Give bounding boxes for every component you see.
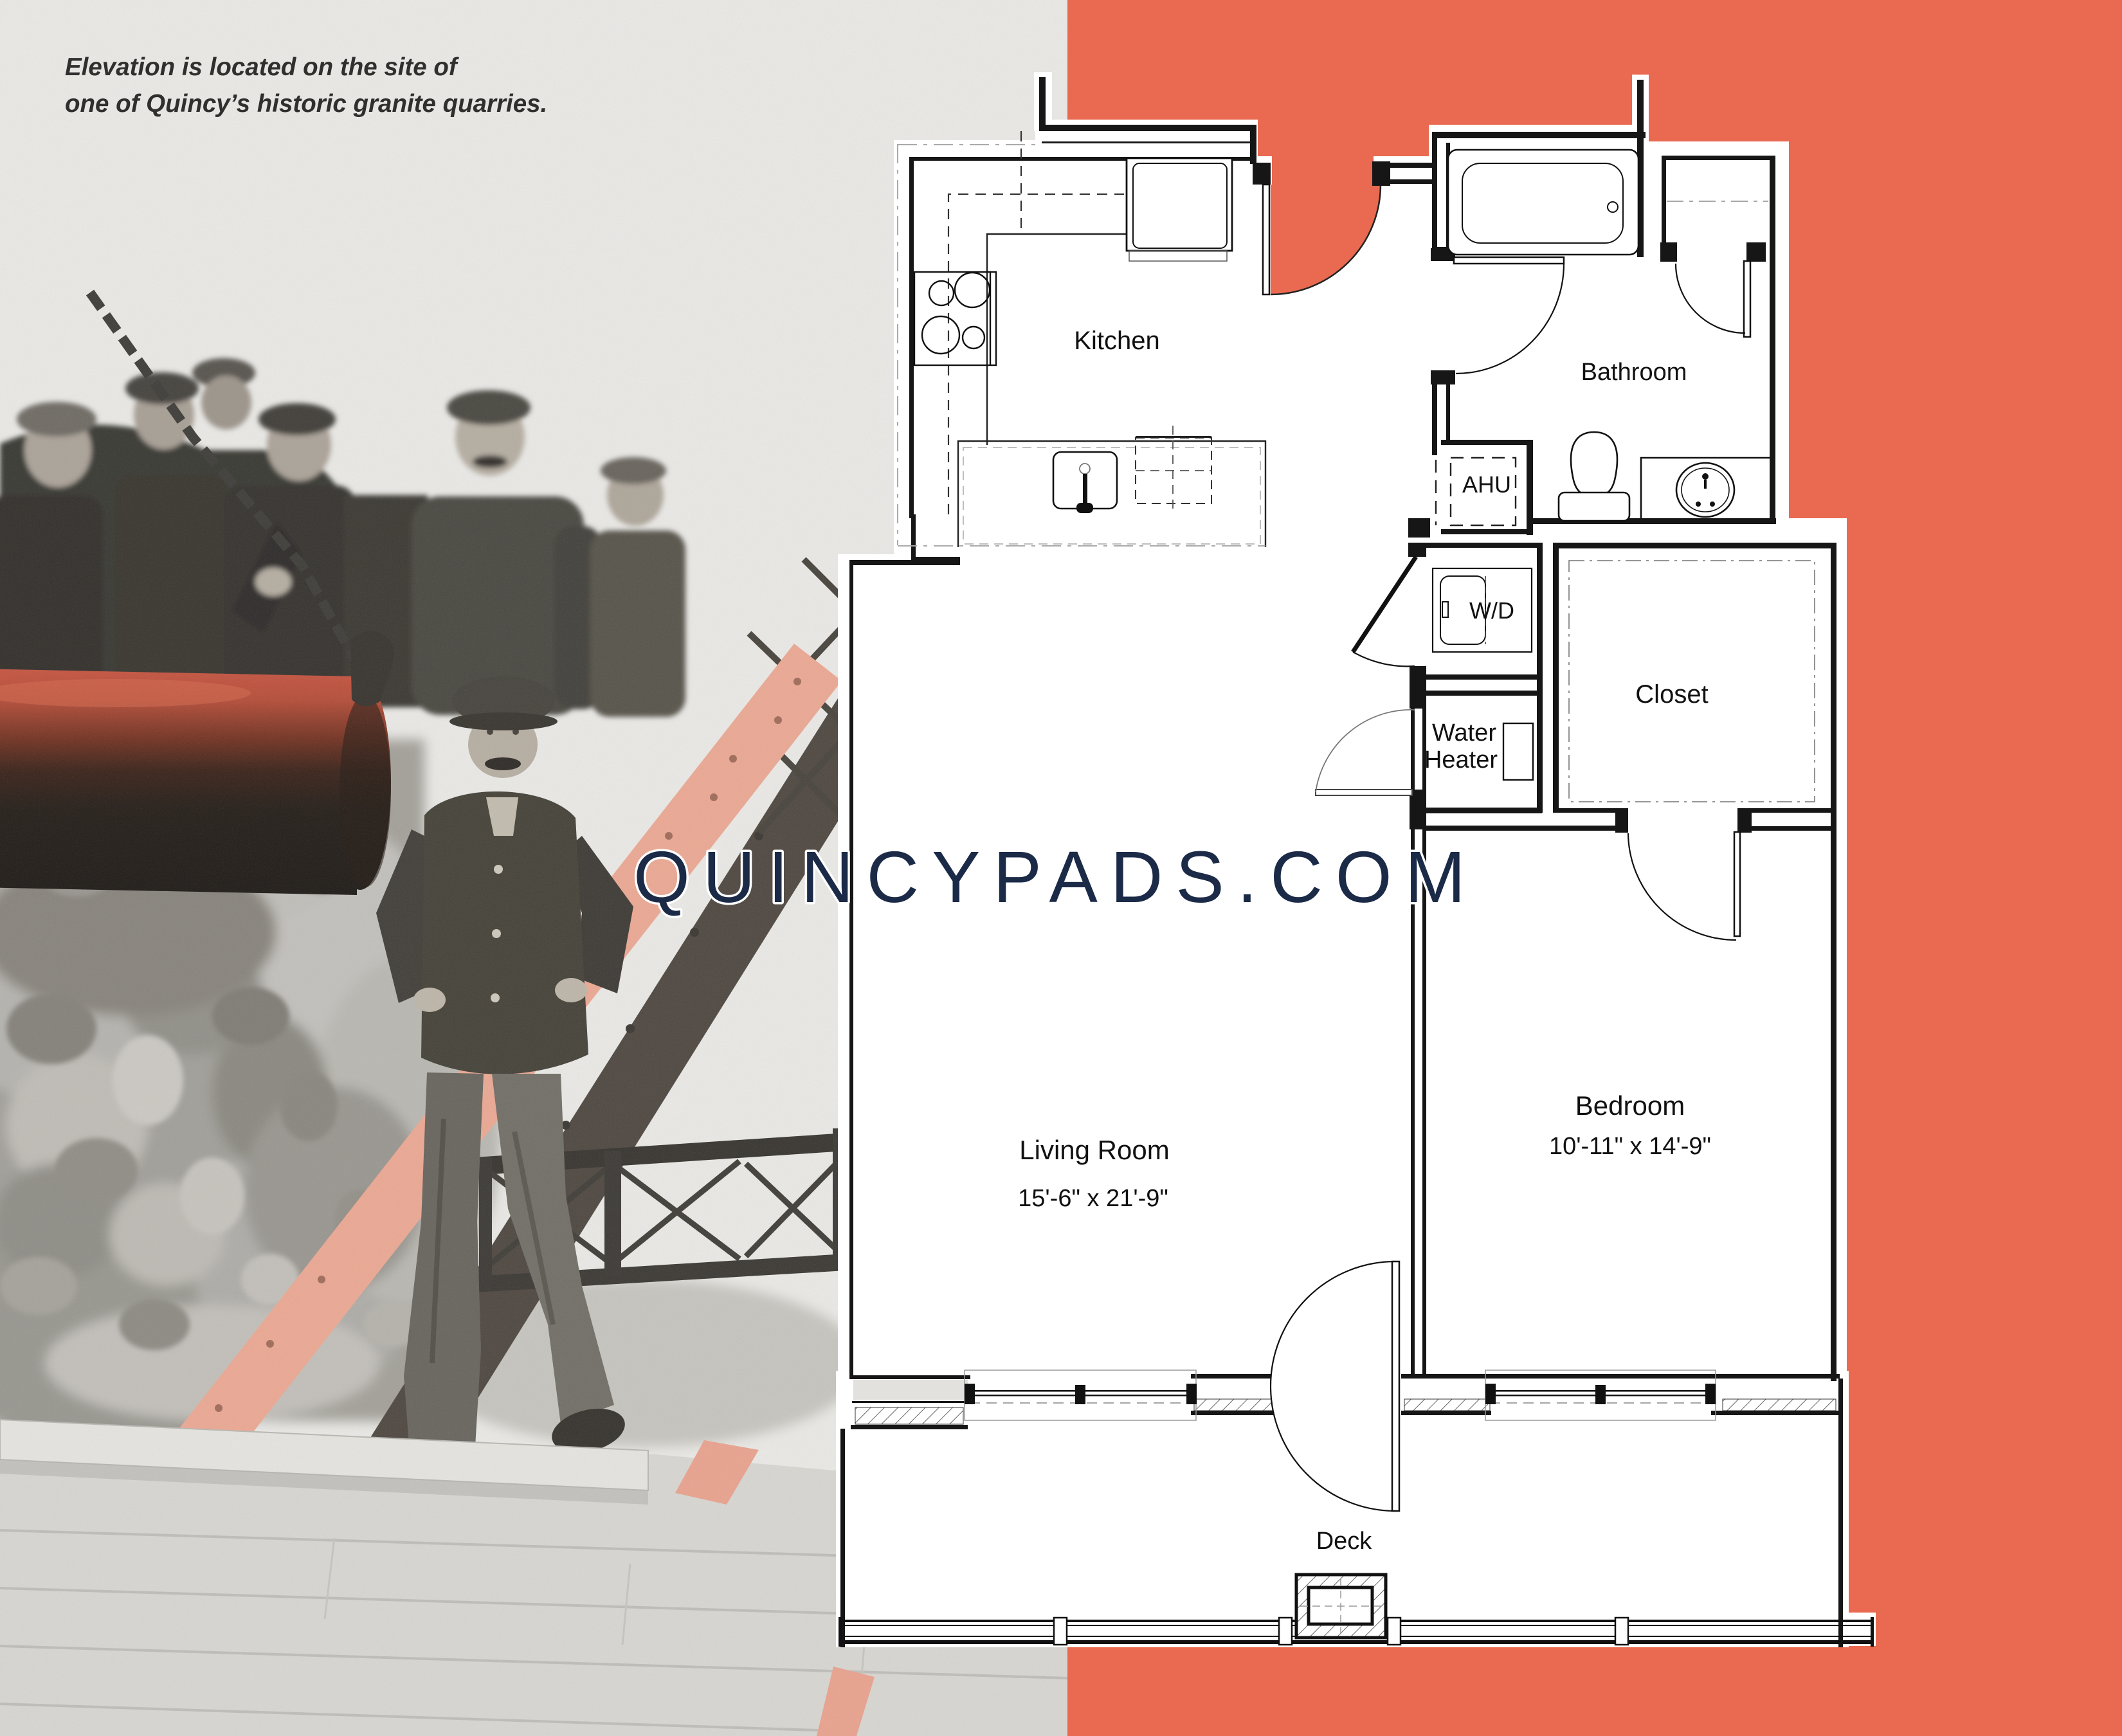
- svg-text:Closet: Closet: [1635, 680, 1708, 709]
- svg-text:10'-11" x 14'-9": 10'-11" x 14'-9": [1549, 1133, 1711, 1160]
- svg-text:QUINCYPADS.COM: QUINCYPADS.COM: [633, 836, 1478, 918]
- svg-text:Bathroom: Bathroom: [1581, 359, 1687, 386]
- svg-text:AHU: AHU: [1462, 471, 1511, 498]
- svg-text:Living Room: Living Room: [1019, 1135, 1169, 1165]
- svg-text:Bedroom: Bedroom: [1575, 1090, 1685, 1121]
- svg-text:Kitchen: Kitchen: [1074, 327, 1159, 355]
- svg-text:Water: Water: [1432, 719, 1496, 746]
- svg-text:Heater: Heater: [1424, 746, 1498, 773]
- svg-text:Deck: Deck: [1316, 1528, 1373, 1555]
- svg-text:15'-6" x 21'-9": 15'-6" x 21'-9": [1018, 1185, 1168, 1212]
- svg-text:one of Quincy’s historic grani: one of Quincy’s historic granite quarrie…: [65, 90, 547, 118]
- svg-text:W/D: W/D: [1469, 597, 1514, 624]
- svg-text:Elevation is located on the si: Elevation is located on the site of: [65, 53, 460, 81]
